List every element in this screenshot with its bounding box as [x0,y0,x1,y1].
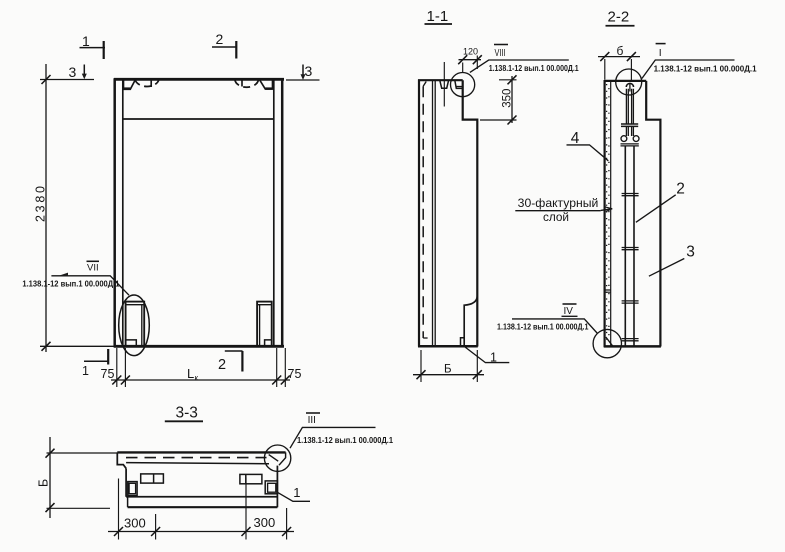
svg-text:75: 75 [101,367,115,381]
svg-text:слой: слой [543,210,569,224]
svg-text:1: 1 [82,33,90,49]
svg-text:300: 300 [124,515,146,530]
svg-text:2: 2 [216,31,224,47]
svg-text:1: 1 [82,364,89,378]
svg-text:IV: IV [564,306,574,317]
svg-text:1-1: 1-1 [427,8,449,25]
svg-text:3: 3 [69,64,77,80]
svg-text:3: 3 [686,244,695,261]
svg-text:Б: Б [37,479,51,487]
svg-text:3-3: 3-3 [176,405,198,422]
svg-text:VII: VII [87,263,99,274]
svg-text:L: L [187,366,194,381]
svg-text:1: 1 [293,485,300,500]
svg-text:2: 2 [218,357,226,373]
svg-text:I: I [659,47,662,59]
svg-text:2-2: 2-2 [608,9,630,26]
svg-text:3: 3 [305,63,313,79]
svg-text:1.138.1-12 вып.1 00.000Д.1: 1.138.1-12 вып.1 00.000Д.1 [22,279,119,289]
svg-text:300: 300 [254,515,276,530]
svg-text:б: б [617,44,624,58]
svg-text:1: 1 [490,351,497,365]
svg-text:120: 120 [463,47,478,57]
svg-text:30-фактурный: 30-фактурный [518,196,599,210]
svg-text:Б: Б [444,364,452,376]
svg-text:III: III [308,415,316,426]
svg-text:350: 350 [502,89,514,108]
svg-text:75: 75 [288,367,302,381]
svg-text:1.138.1-12 вып.1 00.000Д.1: 1.138.1-12 вып.1 00.000Д.1 [297,435,393,445]
svg-text:1.138.1-12 вып.1 00.000Д.1: 1.138.1-12 вып.1 00.000Д.1 [497,322,589,332]
svg-text:VIII: VIII [495,48,506,59]
svg-text:к: к [195,374,199,383]
svg-text:1.138.1-12 вып.1 00.000Д.1: 1.138.1-12 вып.1 00.000Д.1 [489,63,579,73]
svg-text:1.138.1-12 вып.1 00.000Д.1: 1.138.1-12 вып.1 00.000Д.1 [654,63,757,73]
svg-text:2: 2 [676,181,685,198]
